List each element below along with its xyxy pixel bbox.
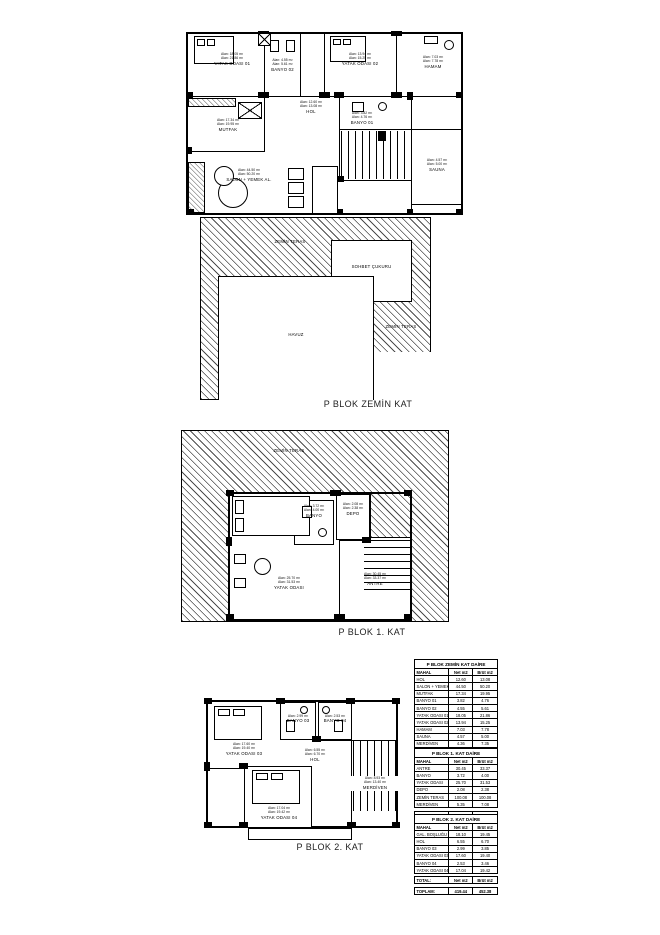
- table-cell: HOL: [415, 676, 449, 682]
- table-cell: YATAK ODASI 02: [415, 719, 449, 725]
- table-cell: 7.03: [449, 727, 473, 733]
- room-label-banyo04: Alan: 2.53 m² BANYO 04: [319, 714, 351, 724]
- table-row: BANYO 032.993.85: [414, 846, 498, 853]
- table-cell: 7.08: [473, 801, 497, 807]
- room-label-hol: Alan: 12.60 m² Alan: 13.08 m² HOL: [288, 100, 334, 115]
- table-row: MERDİVEN4.367.35: [414, 741, 498, 748]
- table-cell: Brüt m2: [473, 877, 497, 883]
- table-row: BANYO 024.555.61: [414, 705, 498, 712]
- sink-icon: [322, 706, 330, 714]
- dining-table-icon: [312, 166, 338, 214]
- table-cell: YATAK ODASI: [415, 780, 449, 786]
- plan-title-1-kat: P BLOK 1. KAT: [292, 627, 452, 637]
- table-row: GAL. BOŞLUĞU18.1019.45: [414, 831, 498, 838]
- table-cell: MERDİVEN: [415, 741, 449, 747]
- table-row: SAUNA4.575.00: [414, 734, 498, 741]
- table-cell: 15.25: [473, 719, 497, 725]
- table-cell: 6.55: [449, 838, 473, 844]
- table-row: YATAK ODASI 0213.9415.25: [414, 719, 498, 726]
- chair-icon: [234, 578, 246, 588]
- terrace-void: [374, 352, 432, 401]
- plan-title-2-kat: P BLOK 2. KAT: [250, 842, 410, 852]
- table-cell: HAMAM: [415, 727, 449, 733]
- table-cell: 3.85: [473, 846, 497, 852]
- area-table-2-kat: P BLOK 2. KAT DAİREMAHALNet m2Brüt m2GAL…: [414, 814, 498, 886]
- table-row: ANTRE30.4533.37: [414, 765, 498, 772]
- table-cell: Brüt m2: [473, 824, 497, 830]
- sofa-icon: [288, 168, 304, 180]
- kitchen-counter: [188, 98, 236, 107]
- table-cell: 19.42: [473, 867, 497, 873]
- table-cell: 13.94: [449, 719, 473, 725]
- table-cell: SAUNA: [415, 734, 449, 740]
- architectural-sheet: Alan: 18.05 m² Alan: 21.86 m² YATAK ODAS…: [0, 0, 660, 935]
- room-label-hol: Alan: 6.55 m² Alan: 6.70 m² HOL: [292, 748, 338, 763]
- table-cell: 2.08: [449, 787, 473, 793]
- room-label-depo: Alan: 2.08 m² Alan: 2.38 m² DEPO: [337, 502, 369, 517]
- table-cell: 2.53: [449, 860, 473, 866]
- table-row: BANYO 042.533.46: [414, 860, 498, 867]
- table-cell: 13.08: [473, 676, 497, 682]
- table-cell: Brüt m2: [473, 758, 497, 764]
- skylight-icon: [238, 102, 262, 119]
- table-cell: 452.38: [473, 888, 497, 894]
- table-cell: 19.45: [473, 831, 497, 837]
- table-cell: 4.36: [449, 741, 473, 747]
- room-label-yatak03: Alan: 17.60 m² Alan: 19.40 m² YATAK ODAS…: [212, 742, 276, 757]
- room-label-hamam: Alan: 7.03 m² Alan: 7.78 m² HAMAM: [408, 55, 458, 70]
- room-label-banyo: Alan: 3.72 m² Alan: 4.00 m² BANYO: [295, 504, 333, 519]
- room-label-banyo03: Alan: 2.99 m² BANYO 03: [281, 714, 315, 724]
- table-cell: 4.76: [473, 698, 497, 704]
- room-label-sauna: Alan: 4.57 m² Alan: 5.00 m² SAUNA: [414, 158, 460, 173]
- table-cell: 5.61: [473, 705, 497, 711]
- table-cell: ZEMİN TERAS: [415, 794, 449, 800]
- sink-icon: [300, 706, 308, 714]
- table-cell: 17.04: [449, 867, 473, 873]
- table-cell: Net m2: [449, 824, 473, 830]
- sink-icon: [378, 102, 387, 111]
- table-cell: 2.38: [473, 787, 497, 793]
- table-cell: 19.40: [473, 853, 497, 859]
- room-label-banyo01: Alan: 3.82 m² Alan: 4.76 m² BANYO 01: [340, 111, 384, 126]
- room-label-mutfak: Alan: 17.34 m² Alan: 19.95 m² MUTFAK: [200, 118, 256, 133]
- table-cell: 2.99: [449, 846, 473, 852]
- table-icon: [254, 558, 271, 575]
- table-row: MUTFAK17.3419.95: [414, 691, 498, 698]
- table-cell: BANYO 03: [415, 846, 449, 852]
- table-cell: BANYO 01: [415, 698, 449, 704]
- table-cell: 19.95: [473, 691, 497, 697]
- label-zemin-teras-top: ZEMİN TERAS: [245, 239, 335, 245]
- table-cell: 18.05: [449, 712, 473, 718]
- table-cell: 17.34: [449, 691, 473, 697]
- room-label-salon: Alan: 44.50 m² Alan: 50.20 m² SALON + YE…: [208, 168, 290, 183]
- table-cell: BANYO 02: [415, 705, 449, 711]
- table-row: YATAK ODASI25.7031.53: [414, 780, 498, 787]
- sink-icon: [286, 40, 295, 52]
- basin-icon: [444, 40, 454, 50]
- room-label-yatak: Alan: 25.70 m² Alan: 31.53 m² YATAK ODAS…: [250, 576, 328, 591]
- table-row: YATAK ODASI 0417.0419.42: [414, 867, 498, 874]
- room-label-antre: Alan: 30.45 m² Alan: 33.37 m² ANTRE: [344, 572, 406, 587]
- balcony: [248, 828, 352, 840]
- area-table-1-kat: P BLOK 1. KAT DAİREMAHALNet m2Brüt m2ANT…: [414, 748, 498, 820]
- table-row: YATAK ODASI 0317.6019.40: [414, 853, 498, 860]
- table-cell: YATAK ODASI 04: [415, 867, 449, 873]
- table-cell: 44.50: [449, 683, 473, 689]
- sofa-icon: [288, 196, 304, 208]
- table-cell: MAHAL: [415, 758, 449, 764]
- table-row: MERDİVEN5.357.08: [414, 801, 498, 808]
- table-header-row: MAHALNet m2Brüt m2: [414, 669, 498, 676]
- table-cell: MERDİVEN: [415, 801, 449, 807]
- plan-title-zemin-kat: P BLOK ZEMİN KAT: [268, 399, 468, 409]
- table-cell: 12.60: [449, 676, 473, 682]
- table-row: BANYO 013.824.76: [414, 698, 498, 705]
- table-row: BANYO3.724.00: [414, 772, 498, 779]
- table-cell: 5.35: [449, 801, 473, 807]
- table-cell: 7.35: [473, 741, 497, 747]
- fireplace: [188, 162, 205, 213]
- table-cell: BANYO: [415, 772, 449, 778]
- table-cell: 4.55: [449, 705, 473, 711]
- staircase: [341, 131, 410, 179]
- table-row: SALON + YEMEK AL.44.5050.20: [414, 683, 498, 690]
- table-cell: 31.53: [473, 780, 497, 786]
- bed-icon: [252, 770, 300, 804]
- table-cell: 3.46: [473, 860, 497, 866]
- grand-total-table: TOTAL: Net m2 Brüt m2 TOPLAM: 419.44 452…: [414, 876, 498, 895]
- table-cell: MAHAL: [415, 824, 449, 830]
- table-cell: DEPO: [415, 787, 449, 793]
- table-header-row: MAHALNet m2Brüt m2: [414, 824, 498, 831]
- table-cell: GAL. BOŞLUĞU: [415, 831, 449, 837]
- table-title: P BLOK 2. KAT DAİRE: [414, 814, 498, 824]
- table-cell: ANTRE: [415, 765, 449, 771]
- sink-icon: [318, 528, 327, 537]
- table-cell: MAHAL: [415, 669, 449, 675]
- table-cell: TOPLAM:: [415, 888, 449, 894]
- table-cell: 18.10: [449, 831, 473, 837]
- room-label-banyo02: Alan: 4.55 m² Alan: 5.61 m² BANYO 02: [264, 58, 301, 73]
- table-row: YATAK ODASI 0118.0521.86: [414, 712, 498, 719]
- table-cell: 100.08: [473, 794, 497, 800]
- table-cell: HOL: [415, 838, 449, 844]
- table-cell: 5.00: [473, 734, 497, 740]
- table-cell: 3.82: [449, 698, 473, 704]
- grand-total-header-row: TOTAL: Net m2 Brüt m2: [414, 876, 498, 884]
- table-cell: 25.70: [449, 780, 473, 786]
- table-cell: MUTFAK: [415, 691, 449, 697]
- table-cell: 21.86: [473, 712, 497, 718]
- table-cell: Net m2: [449, 758, 473, 764]
- label-zemin-teras-right: ZEMİN TERAS: [372, 324, 430, 330]
- table-header-row: MAHALNet m2Brüt m2: [414, 758, 498, 765]
- table-cell: 33.37: [473, 765, 497, 771]
- table-title: P BLOK 1. KAT DAİRE: [414, 748, 498, 758]
- room-label-yatak04: Alan: 17.04 m² Alan: 19.42 m² YATAK ODAS…: [248, 806, 310, 821]
- table-cell: 50.20: [473, 683, 497, 689]
- bench-icon: [424, 36, 438, 44]
- chair-icon: [234, 554, 246, 564]
- room-label-merdiven: Alan: 8.93 m² Alan: 13.40 m² MERDİVEN: [350, 776, 400, 791]
- table-cell: Net m2: [449, 669, 473, 675]
- table-cell: 4.57: [449, 734, 473, 740]
- label-zemin-teras-kat1: ZEMİN TERAS: [248, 448, 330, 454]
- table-cell: 100.08: [449, 794, 473, 800]
- table-cell: Brüt m2: [473, 669, 497, 675]
- room-label-yatak02: Alan: 13.94 m² Alan: 15.25 m² YATAK ODAS…: [328, 52, 392, 67]
- table-row: HOL12.6013.08: [414, 676, 498, 683]
- table-title: P BLOK ZEMİN KAT DAİRE: [414, 659, 498, 669]
- table-row: ZEMİN TERAS100.08100.08: [414, 794, 498, 801]
- bed-icon: [214, 706, 262, 740]
- terrace-patch: [370, 494, 410, 538]
- table-cell: 4.00: [473, 772, 497, 778]
- table-cell: 6.70: [473, 838, 497, 844]
- table-row: HOL6.556.70: [414, 838, 498, 845]
- table-cell: BANYO 04: [415, 860, 449, 866]
- toilet-icon: [270, 40, 279, 52]
- table-cell: 3.72: [449, 772, 473, 778]
- table-row: HAMAM7.037.78: [414, 727, 498, 734]
- table-cell: SALON + YEMEK AL.: [415, 683, 449, 689]
- room-depo: [336, 494, 370, 540]
- table-cell: TOTAL:: [415, 877, 449, 883]
- table-cell: 7.78: [473, 727, 497, 733]
- table-cell: 30.45: [449, 765, 473, 771]
- grand-total-row: TOPLAM: 419.44 452.38: [414, 887, 498, 895]
- room-label-yatak01: Alan: 18.05 m² Alan: 21.86 m² YATAK ODAS…: [200, 52, 264, 67]
- sofa-icon: [288, 182, 304, 194]
- table-cell: YATAK ODASI 03: [415, 853, 449, 859]
- table-row: DEPO2.082.38: [414, 787, 498, 794]
- label-sohbet-cukuru: SOHBET ÇUKURU: [332, 264, 411, 270]
- label-havuz: HAVUZ: [250, 332, 342, 338]
- table-cell: 17.60: [449, 853, 473, 859]
- table-cell: 419.44: [449, 888, 473, 894]
- table-cell: Net m2: [449, 877, 473, 883]
- table-cell: YATAK ODASI 01: [415, 712, 449, 718]
